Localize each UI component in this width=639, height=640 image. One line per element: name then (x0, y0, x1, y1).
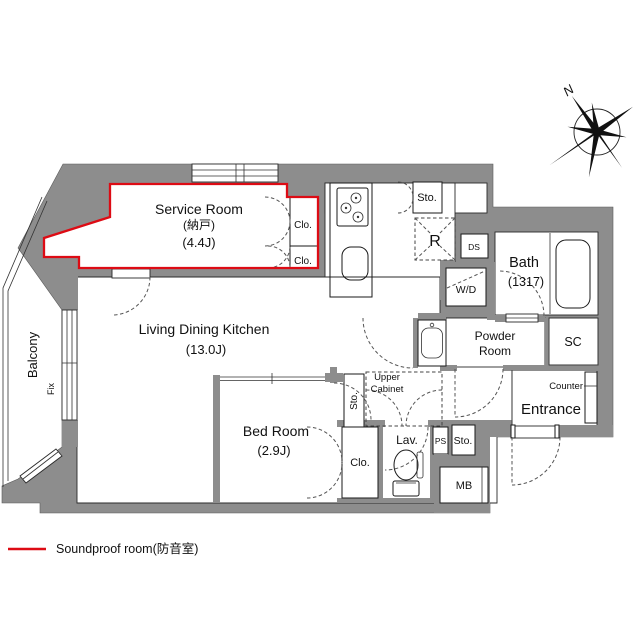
floorplan-page: N Service Room (納戸) (4.4J) Clo. Clo. Sto… (0, 0, 639, 640)
bath-size: (1317) (508, 275, 544, 289)
bedroom-size: (2.9J) (257, 443, 290, 458)
entrance-label: Entrance (521, 401, 581, 418)
sc-label: SC (564, 335, 581, 349)
closet1-label: Clo. (294, 220, 312, 231)
bedroom-closet-label: Clo. (350, 457, 370, 469)
compass-rose: N (550, 81, 634, 177)
fix-window-label: Fix (46, 383, 56, 395)
balcony-label: Balcony (25, 331, 40, 378)
service-room-size: (4.4J) (182, 235, 215, 250)
duct-label: DS (468, 242, 480, 252)
floorplan-canvas: N Service Room (納戸) (4.4J) Clo. Clo. Sto… (0, 0, 639, 640)
top-window (192, 164, 278, 182)
closet2-label: Clo. (294, 256, 312, 267)
bedroom-label: Bed Room (243, 423, 309, 439)
counter-strip (585, 372, 597, 423)
service-room-label: Service Room (155, 201, 243, 217)
washer-label: W/D (456, 284, 477, 296)
washbasin-icon (418, 320, 446, 366)
kitchen-storage-label: Sto. (417, 192, 437, 204)
lav-label: Lav. (396, 433, 418, 447)
bath-label: Bath (509, 255, 539, 271)
legend: Soundproof room(防音室) (8, 541, 198, 556)
door-jamb-left (511, 425, 515, 438)
corridor-storage-label: Sto. (454, 435, 473, 447)
door-jamb-right (555, 425, 559, 438)
entrance-door-opening (515, 426, 556, 438)
upper-cabinet-label2: Cabinet (371, 384, 404, 395)
service-room-sub: (納戸) (183, 218, 215, 232)
fix-window (62, 310, 77, 420)
powder-label1: Powder (475, 329, 516, 343)
bath-floor (495, 232, 598, 315)
legend-label: Soundproof room(防音室) (56, 541, 198, 556)
ldk-label: Living Dining Kitchen (139, 321, 270, 337)
service-door-opening (112, 269, 150, 278)
hall-storage-label: Sto. (349, 392, 360, 410)
fridge-label: R (429, 233, 441, 250)
ps-label: PS (435, 436, 447, 446)
entrance-door-arc (512, 437, 560, 485)
entrance-floor (512, 370, 597, 427)
powder-label2: Room (479, 344, 511, 358)
counter-label: Counter (549, 381, 583, 392)
upper-cabinet-label1: Upper (374, 372, 400, 383)
north-label: N (560, 81, 577, 99)
compass-blades (550, 96, 634, 177)
meter-box-label: MB (456, 480, 473, 492)
ldk-size: (13.0J) (186, 342, 226, 357)
